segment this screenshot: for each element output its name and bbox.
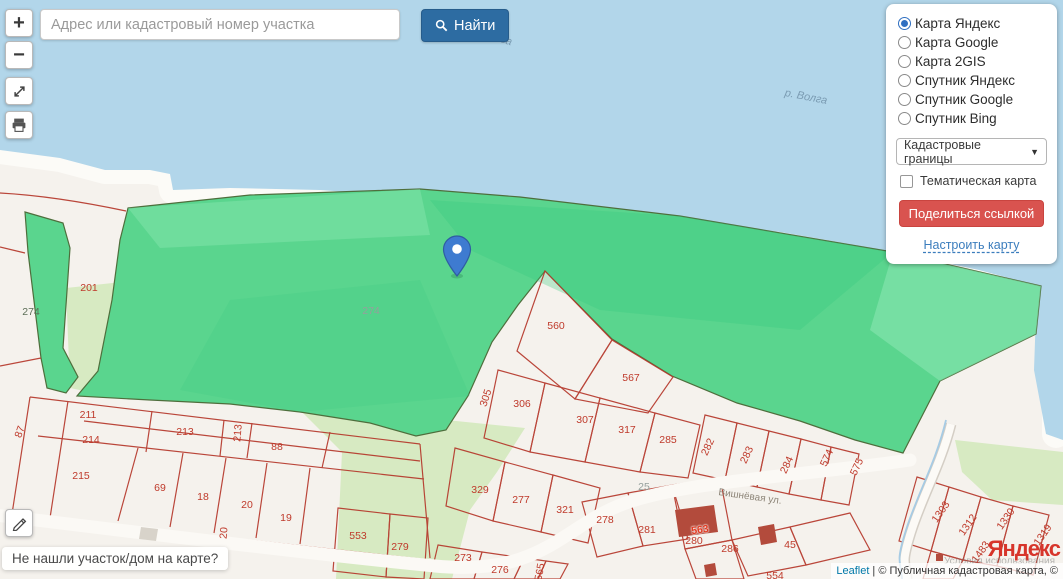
layer-type-select-value: Кадастровые границы <box>904 138 1030 166</box>
fullscreen-button[interactable] <box>5 77 33 105</box>
search-button-label: Найти <box>454 18 495 34</box>
layer-option-карта-яндекс[interactable]: Карта Яндекс <box>886 14 1057 33</box>
thematic-map-label: Тематическая карта <box>920 174 1036 188</box>
layer-option-спутник-google[interactable]: Спутник Google <box>886 90 1057 109</box>
layer-option-label: Карта Яндекс <box>915 16 1000 31</box>
radio-icon[interactable] <box>898 55 911 68</box>
layers-panel: Карта ЯндексКарта GoogleКарта 2GISСпутни… <box>886 4 1057 264</box>
help-tooltip[interactable]: Не нашли участок/дом на карте? <box>2 547 228 570</box>
attribution-bar: Leaflet | © Публичная кадастровая карта,… <box>831 563 1063 579</box>
share-link-button[interactable]: Поделиться ссылкой <box>899 200 1044 227</box>
search-icon <box>435 19 448 32</box>
chevron-down-icon: ▼ <box>1030 147 1039 157</box>
layer-option-карта-2gis[interactable]: Карта 2GIS <box>886 52 1057 71</box>
print-button[interactable] <box>5 111 33 139</box>
attribution-separator: | <box>869 565 878 577</box>
zoom-in-button[interactable]: + <box>5 9 33 37</box>
layer-option-спутник-яндекс[interactable]: Спутник Яндекс <box>886 71 1057 90</box>
radio-icon[interactable] <box>898 74 911 87</box>
attribution-text: © Публичная кадастровая карта, © <box>878 565 1058 577</box>
radio-icon[interactable] <box>898 112 911 125</box>
measure-button[interactable] <box>5 509 33 537</box>
layer-option-label: Спутник Bing <box>915 111 997 126</box>
layer-option-label: Спутник Google <box>915 92 1013 107</box>
layer-type-select[interactable]: Кадастровые границы ▼ <box>896 138 1047 165</box>
search-input[interactable] <box>40 9 400 40</box>
layer-option-label: Спутник Яндекс <box>915 73 1015 88</box>
layer-option-карта-google[interactable]: Карта Google <box>886 33 1057 52</box>
radio-selected-icon[interactable] <box>898 17 911 30</box>
search-button[interactable]: Найти <box>421 9 509 42</box>
thematic-map-checkbox[interactable] <box>900 175 913 188</box>
leaflet-link[interactable]: Leaflet <box>836 565 869 577</box>
configure-map-link[interactable]: Настроить карту <box>886 238 1057 252</box>
thematic-map-checkbox-row[interactable]: Тематическая карта <box>900 174 1047 188</box>
layer-options-list: Карта ЯндексКарта GoogleКарта 2GISСпутни… <box>886 14 1057 128</box>
radio-icon[interactable] <box>898 36 911 49</box>
layer-option-label: Карта 2GIS <box>915 54 986 69</box>
printer-icon <box>11 117 27 133</box>
zoom-out-button[interactable]: − <box>5 41 33 69</box>
radio-icon[interactable] <box>898 93 911 106</box>
map-viewport[interactable]: Волгар. Волга274201274560567305306307317… <box>0 0 1063 579</box>
pencil-icon <box>11 515 27 531</box>
layer-option-спутник-bing[interactable]: Спутник Bing <box>886 109 1057 128</box>
expand-icon <box>12 84 27 99</box>
layer-option-label: Карта Google <box>915 35 998 50</box>
